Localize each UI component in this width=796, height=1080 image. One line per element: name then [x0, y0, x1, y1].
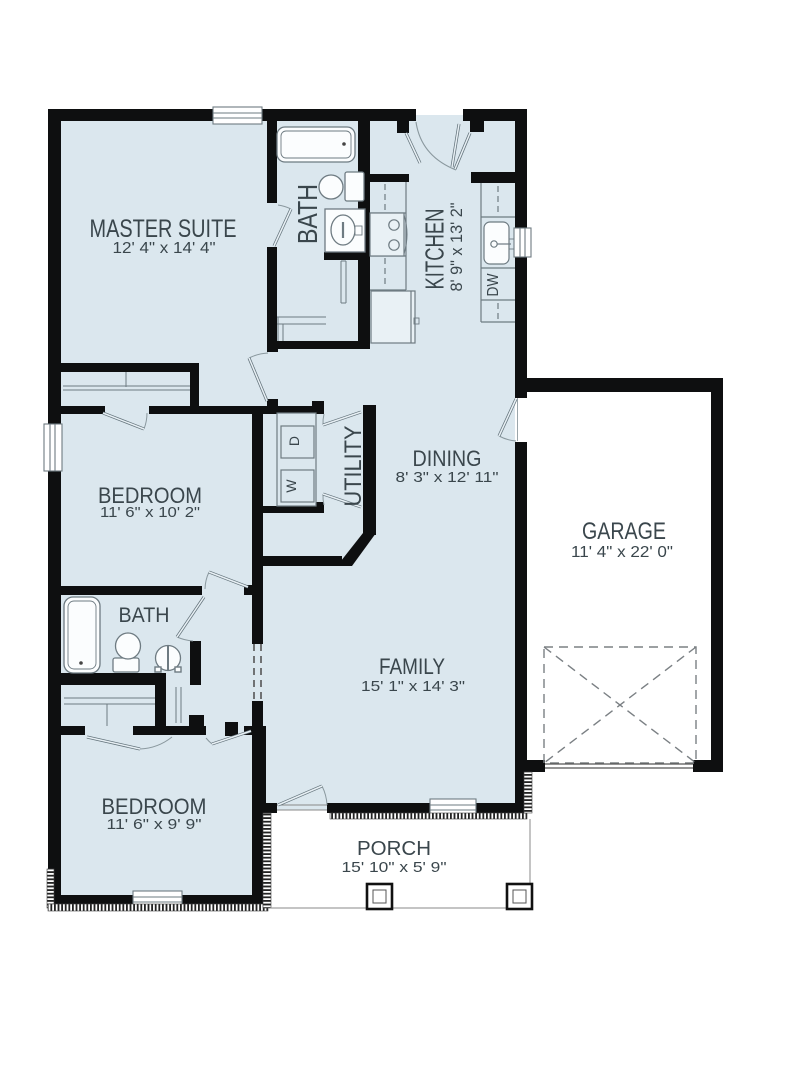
svg-text:8' 9" x 13' 2": 8' 9" x 13' 2": [448, 202, 466, 291]
svg-text:BATH: BATH: [292, 184, 323, 244]
svg-text:GARAGE: GARAGE: [582, 518, 666, 545]
svg-text:12' 4" x 14' 4": 12' 4" x 14' 4": [113, 240, 216, 257]
svg-text:FAMILY: FAMILY: [379, 654, 445, 679]
svg-text:BATH: BATH: [119, 604, 170, 627]
svg-text:PORCH: PORCH: [357, 837, 431, 860]
svg-text:11' 6" x 10' 2": 11' 6" x 10' 2": [100, 504, 200, 521]
svg-text:15' 10" x 5' 9": 15' 10" x 5' 9": [342, 859, 447, 876]
svg-text:11' 4" x 22' 0": 11' 4" x 22' 0": [571, 544, 673, 561]
svg-text:W: W: [283, 479, 299, 493]
svg-text:15' 1" x 14' 3": 15' 1" x 14' 3": [361, 678, 465, 695]
svg-text:D: D: [286, 436, 302, 446]
svg-text:UTILITY: UTILITY: [340, 426, 367, 507]
svg-text:11' 6" x 9' 9": 11' 6" x 9' 9": [107, 816, 202, 833]
svg-text:KITCHEN: KITCHEN: [420, 209, 450, 290]
svg-text:DW: DW: [485, 273, 502, 296]
svg-text:DINING: DINING: [413, 446, 482, 471]
svg-text:MASTER SUITE: MASTER SUITE: [90, 215, 237, 243]
svg-text:8' 3" x 12' 11": 8' 3" x 12' 11": [396, 469, 499, 486]
